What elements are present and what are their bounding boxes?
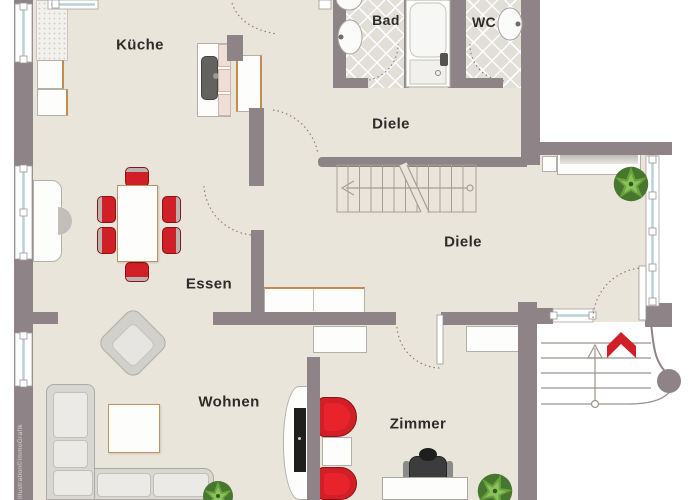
wall-right-corner bbox=[645, 303, 672, 327]
dining-chair bbox=[125, 262, 149, 282]
staircase-entrance bbox=[541, 343, 671, 404]
wall-tub-left bbox=[404, 0, 409, 88]
wall-wc-right bbox=[521, 0, 540, 165]
kitchen-island-cabinet bbox=[218, 69, 231, 92]
kitchen-counter-block bbox=[37, 60, 64, 89]
kitchen-counter-granite bbox=[36, 0, 68, 61]
sofa-cushion bbox=[53, 440, 88, 468]
wall-stairs-top bbox=[318, 157, 527, 167]
wall-wohnen-zimmer bbox=[307, 357, 320, 500]
room-label-diele-top: Diele bbox=[372, 116, 410, 133]
handrail bbox=[651, 322, 681, 393]
entrance-arrow-icon bbox=[607, 332, 636, 358]
handrail-post bbox=[657, 369, 681, 393]
lounge-chair-red bbox=[318, 467, 357, 500]
wohnen-cabinet bbox=[313, 326, 367, 353]
dining-table bbox=[117, 185, 158, 262]
sofa-cushion bbox=[53, 392, 88, 438]
room-label-kueche: Küche bbox=[116, 37, 164, 54]
office-chair-headrest bbox=[419, 448, 437, 461]
sofa-cushion bbox=[97, 473, 151, 497]
wall-zimmer-right bbox=[518, 302, 537, 500]
dining-chair bbox=[97, 196, 116, 223]
wall-bad-left bbox=[333, 0, 346, 88]
armchair-cushion bbox=[110, 322, 157, 369]
coffee-table bbox=[108, 404, 160, 453]
wall-wc-bottom bbox=[466, 78, 503, 88]
hall-cabinet bbox=[264, 287, 365, 313]
room-label-wohnen: Wohnen bbox=[198, 394, 259, 411]
room-label-bad: Bad bbox=[372, 12, 400, 28]
wall-kitchen-stub bbox=[227, 35, 243, 61]
kitchen-tall-cabinet bbox=[236, 55, 262, 112]
room-label-zimmer: Zimmer bbox=[390, 416, 447, 433]
sofa-cushion bbox=[153, 473, 209, 497]
wall-diele-right-top bbox=[540, 142, 672, 155]
hall-cabinet-divider bbox=[313, 289, 314, 311]
diele-sideboard-top bbox=[560, 154, 638, 164]
floor-plan: Küche Bad WC Diele Diele Essen Wohnen Zi… bbox=[0, 0, 700, 500]
side-table bbox=[322, 437, 352, 466]
wall-bad-wc-divider bbox=[448, 0, 466, 88]
sofa-cushion bbox=[53, 470, 93, 496]
watermark-text: Illustration©ImmoGrafik bbox=[17, 389, 24, 499]
dining-chair bbox=[125, 167, 149, 187]
wall-essen-wohnen-stub bbox=[33, 312, 58, 324]
kitchen-counter-block bbox=[37, 89, 68, 116]
diele-cabinet-small bbox=[542, 156, 557, 172]
desk bbox=[382, 477, 468, 500]
wall-kitchen-diele bbox=[249, 108, 264, 186]
dining-chair bbox=[97, 227, 116, 254]
lounge-chair-red bbox=[318, 397, 357, 437]
wall-bad-bottom bbox=[333, 78, 368, 88]
zimmer-cabinet bbox=[466, 326, 520, 352]
kitchen-island-cabinet bbox=[218, 94, 231, 116]
wall-diele-zimmer bbox=[441, 312, 522, 325]
room-label-diele-main: Diele bbox=[444, 234, 482, 251]
room-label-essen: Essen bbox=[186, 276, 232, 293]
dining-chair bbox=[162, 227, 181, 254]
wall-essen-diele bbox=[251, 230, 264, 314]
tv bbox=[294, 408, 306, 472]
wall-essen-wohnen bbox=[213, 312, 396, 325]
entrance-stair-arrow bbox=[588, 345, 602, 408]
tv-dot bbox=[298, 437, 301, 440]
room-label-wc: WC bbox=[472, 14, 496, 30]
dining-chair bbox=[162, 196, 181, 223]
